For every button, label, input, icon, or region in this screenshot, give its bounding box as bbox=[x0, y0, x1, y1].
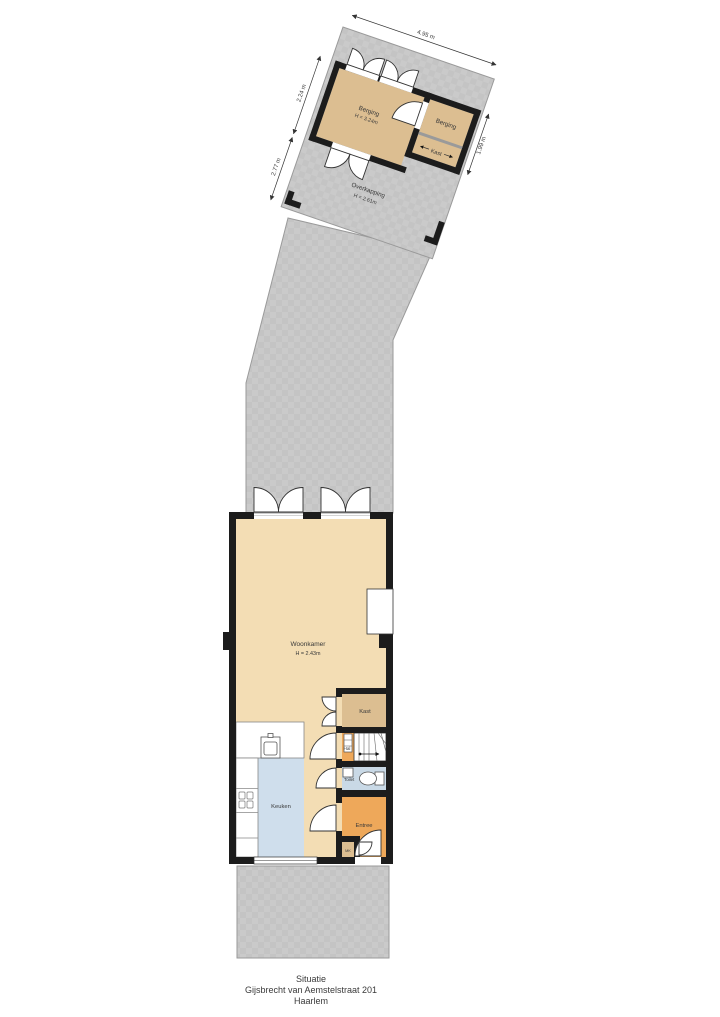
floorplan-canvas: Berging H = 3.24m Berging Kast Overkappi… bbox=[0, 0, 720, 1017]
kitchen-sink bbox=[261, 734, 280, 759]
house-kast-label: Kast bbox=[359, 709, 371, 715]
dim-top: 4.95 m bbox=[416, 30, 435, 42]
toilet-bowl bbox=[360, 772, 377, 785]
right-window bbox=[367, 589, 393, 634]
woonkamer-label: Woonkamer bbox=[291, 641, 327, 648]
caption-title: Situatie bbox=[296, 974, 326, 984]
back-garden bbox=[246, 218, 432, 513]
mk-label: MK bbox=[345, 849, 351, 853]
front-garden bbox=[237, 866, 389, 958]
floorplan-svg: Berging H = 3.24m Berging Kast Overkappi… bbox=[0, 0, 720, 1017]
keuken-window bbox=[254, 857, 317, 864]
toilet-label: Toilet bbox=[344, 777, 355, 782]
keuken-label: Keuken bbox=[271, 804, 291, 810]
entree-label: Entree bbox=[355, 823, 372, 829]
hal-label: Hal bbox=[344, 746, 351, 751]
front-door-opening bbox=[355, 857, 381, 864]
woonkamer-height: H = 2.43m bbox=[295, 651, 321, 657]
toilet-sink bbox=[343, 768, 353, 777]
stairs bbox=[354, 733, 386, 761]
dim-right: 1.99 m bbox=[476, 136, 488, 155]
caption-address: Gijsbrecht van Aemstelstraat 201 bbox=[245, 985, 377, 995]
dim-left-lower: 2.77 m bbox=[271, 157, 283, 176]
dim-left-upper: 2.24 m bbox=[296, 84, 308, 103]
caption-city: Haarlem bbox=[294, 996, 328, 1006]
